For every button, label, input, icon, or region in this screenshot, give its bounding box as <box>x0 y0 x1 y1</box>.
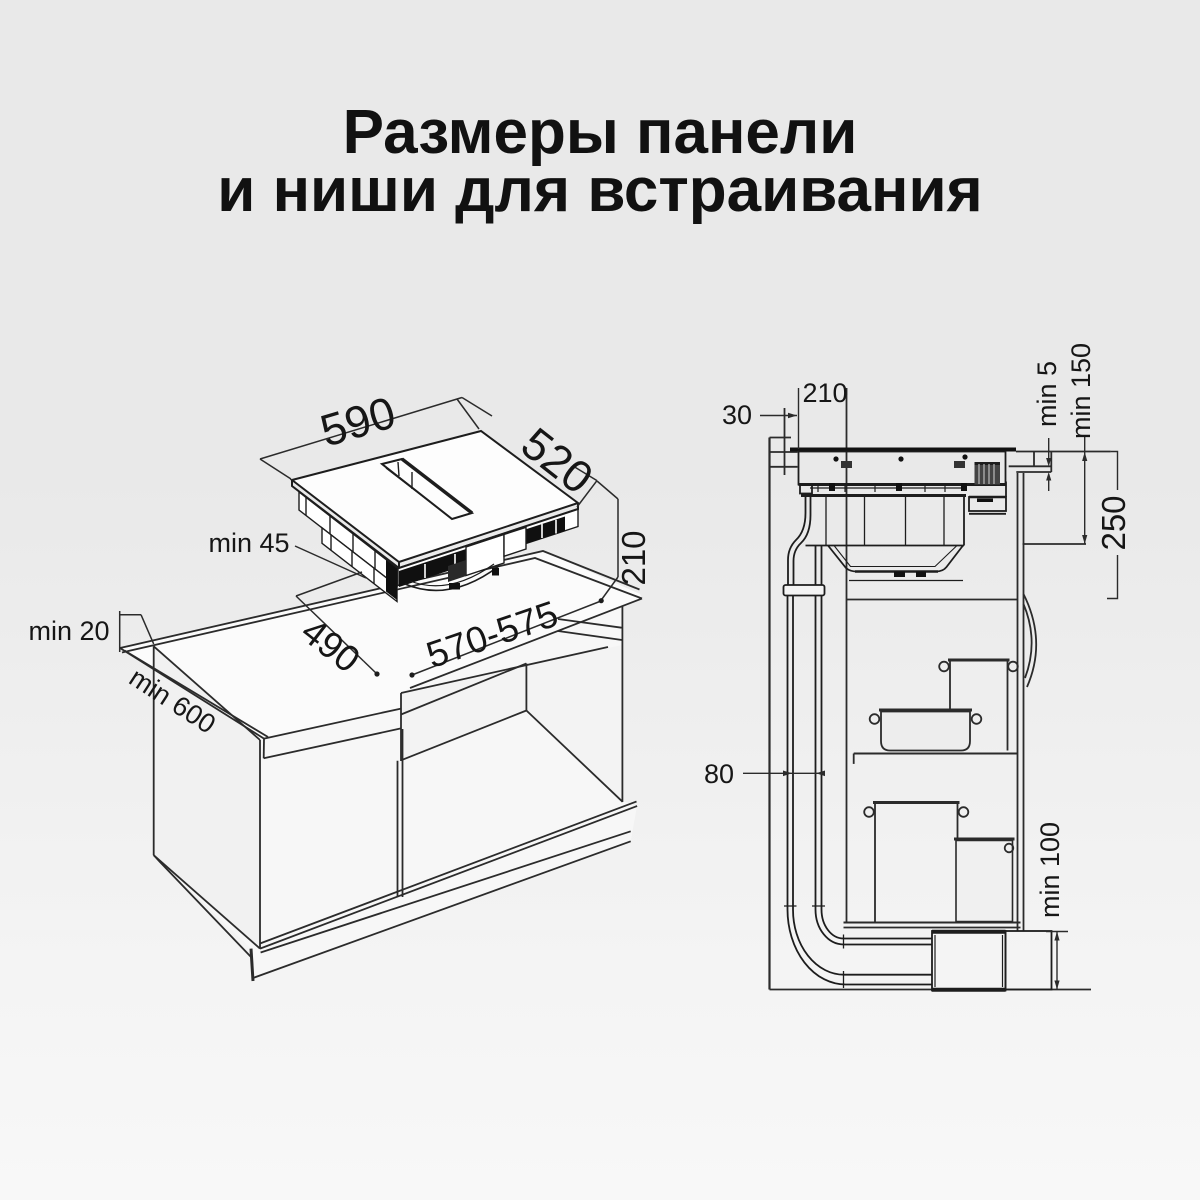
svg-text:590: 590 <box>315 386 401 456</box>
svg-text:80: 80 <box>704 759 734 789</box>
svg-text:min 5: min 5 <box>1032 361 1062 427</box>
svg-text:min 20: min 20 <box>28 616 109 646</box>
svg-text:min 45: min 45 <box>208 528 289 558</box>
svg-text:min 150: min 150 <box>1066 343 1096 439</box>
svg-text:250: 250 <box>1095 495 1132 550</box>
svg-text:min 100: min 100 <box>1035 822 1065 918</box>
svg-text:30: 30 <box>722 400 752 430</box>
svg-text:210: 210 <box>802 378 847 408</box>
svg-text:210: 210 <box>615 530 652 585</box>
